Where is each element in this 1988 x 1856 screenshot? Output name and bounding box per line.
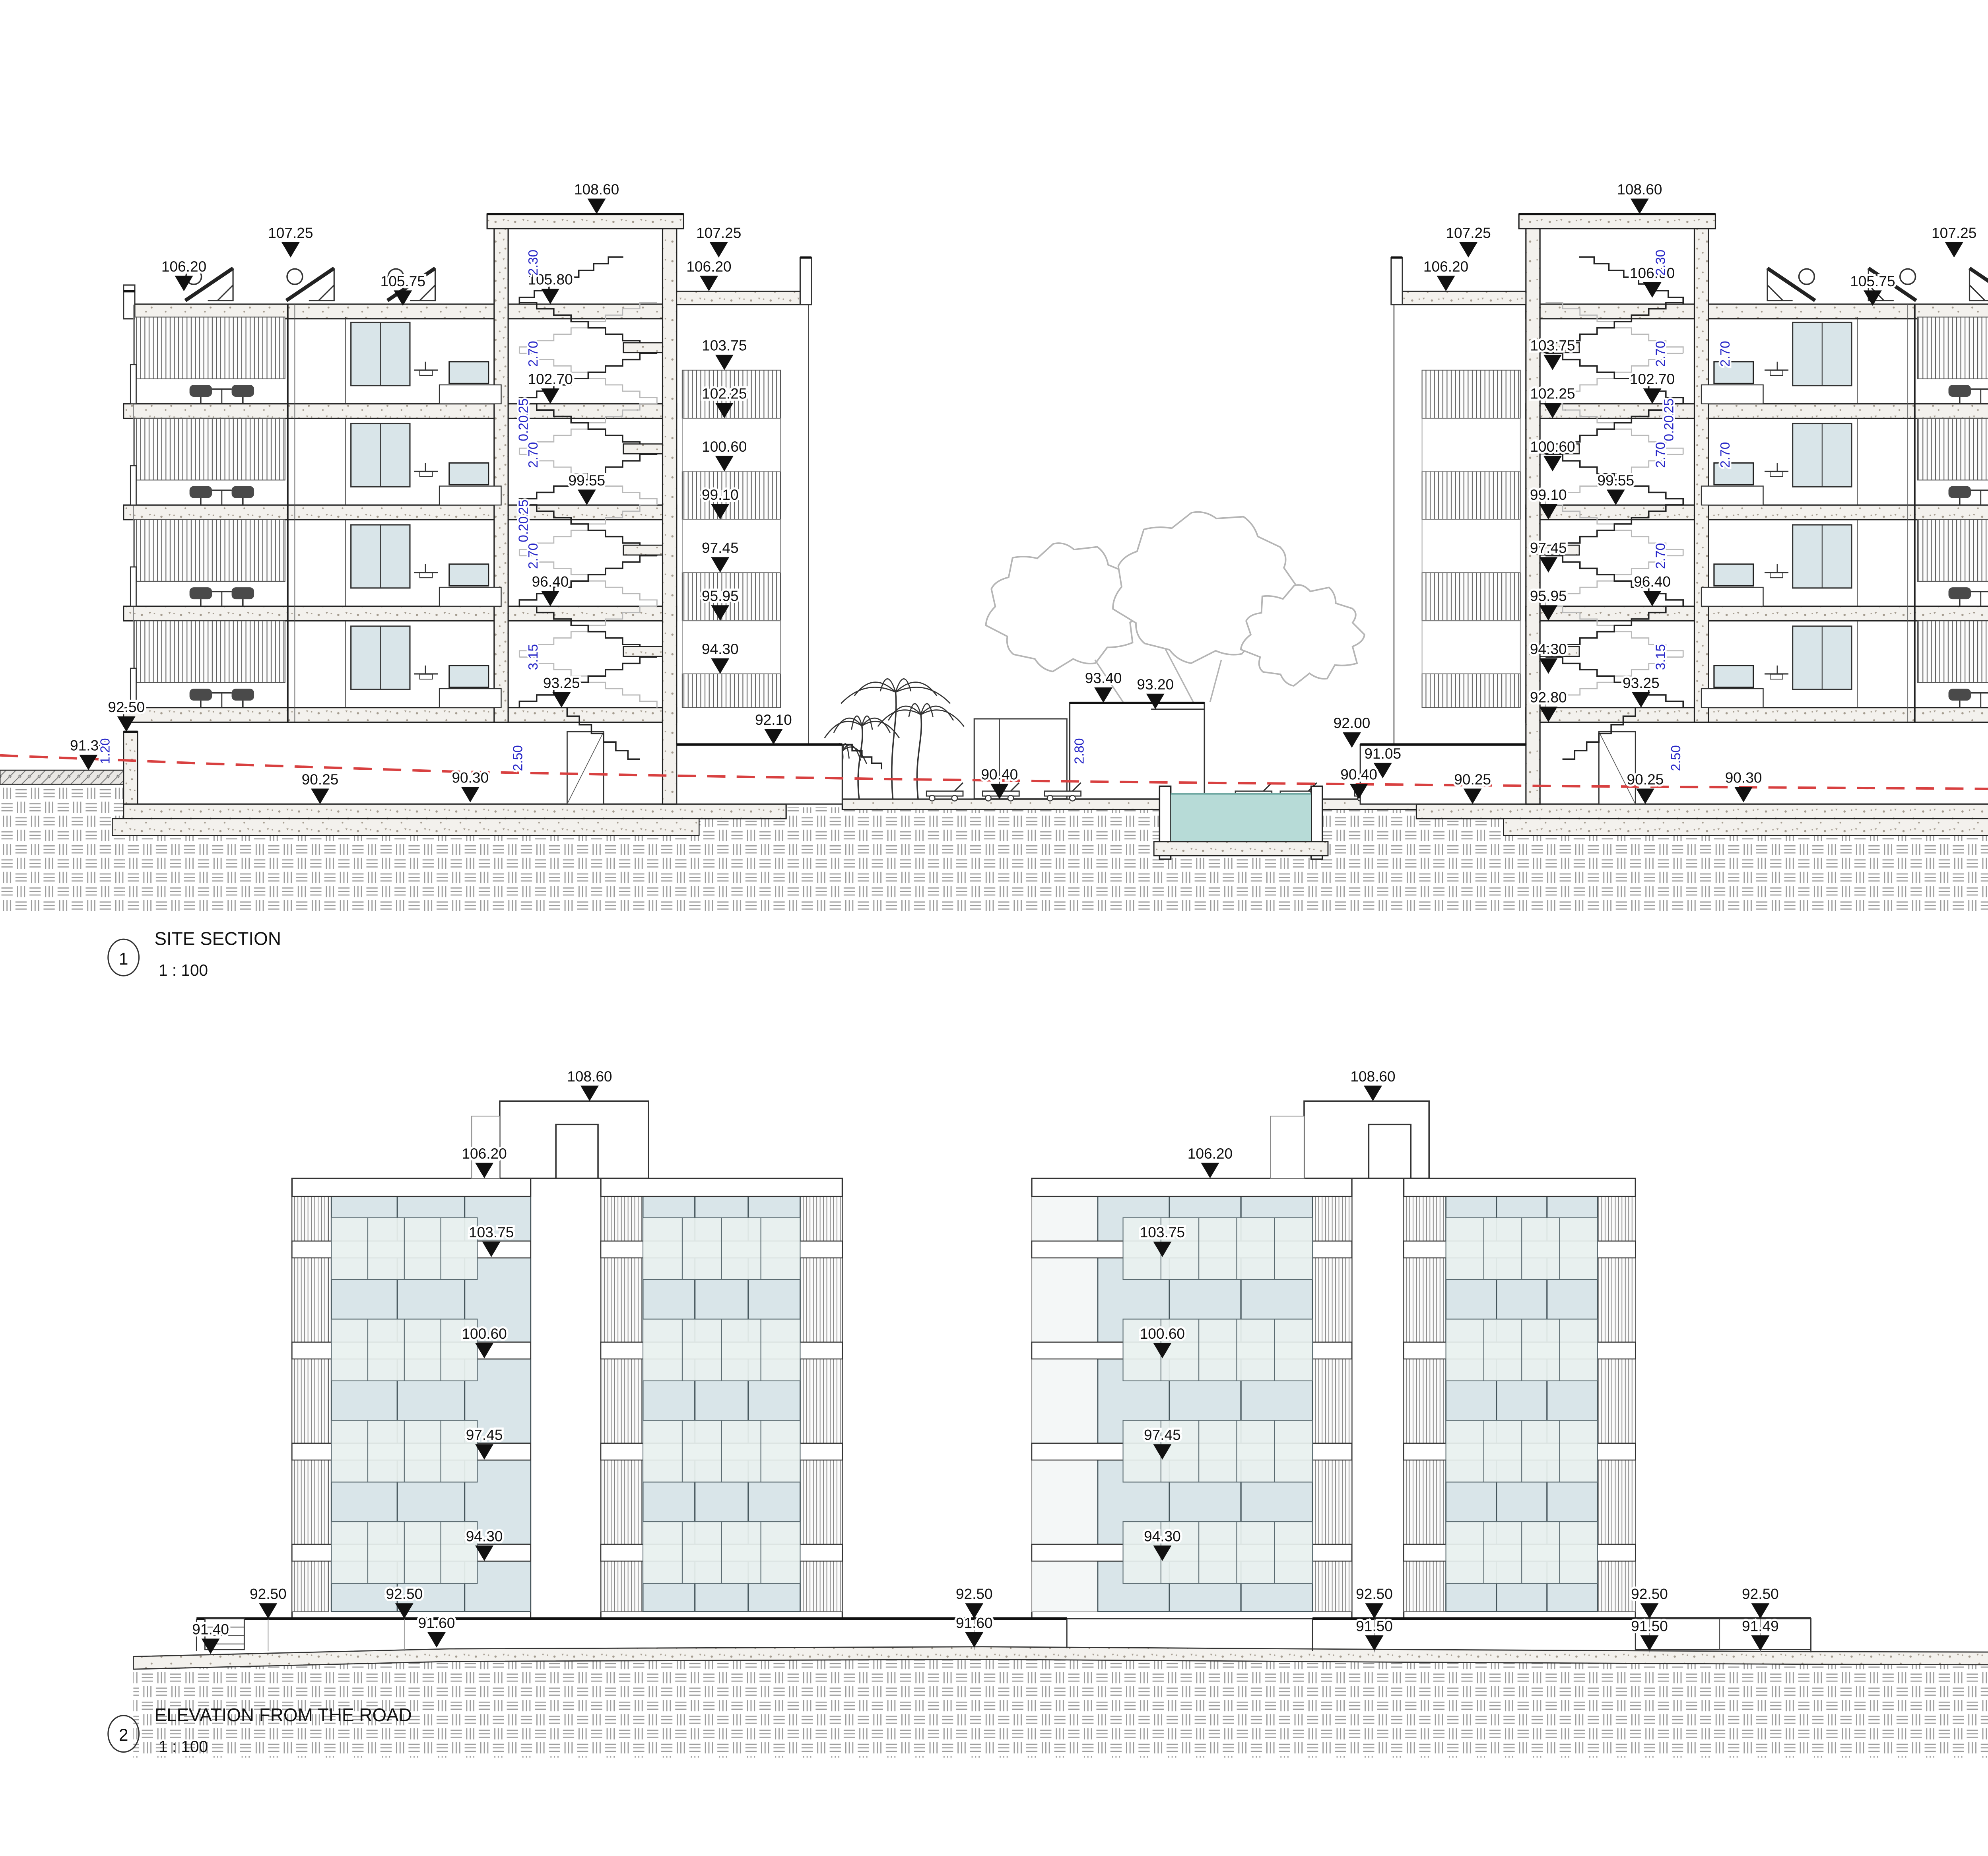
- level-value: 100.60: [1530, 438, 1575, 455]
- elevation-right-building-bay-b: [1404, 1178, 1636, 1619]
- level-value: 107.25: [1932, 224, 1976, 241]
- level-value: 91.60: [956, 1614, 993, 1631]
- dimension-value: 2.70: [1653, 543, 1668, 569]
- pool-deck-left: [842, 799, 1159, 810]
- level-value: 97.45: [466, 1427, 503, 1443]
- stair-landing: [623, 545, 663, 555]
- stair-core-wall: [662, 214, 676, 804]
- chair: [190, 587, 212, 599]
- level-value: 92.10: [755, 711, 792, 728]
- sink: [420, 573, 433, 578]
- view-title: SITE SECTION: [154, 928, 281, 949]
- level-value: 102.25: [1530, 385, 1575, 402]
- chair: [232, 587, 254, 599]
- level-value: 92.50: [1356, 1586, 1393, 1602]
- tv-cabinet: [439, 385, 501, 404]
- swimming-pool: [1154, 786, 1328, 859]
- balustrade: [130, 567, 136, 606]
- level-value: 99.55: [568, 472, 605, 489]
- level-value: 106.20: [1188, 1145, 1233, 1162]
- level-value: 106.20: [1423, 258, 1468, 275]
- chair: [232, 689, 254, 701]
- level-value: 92.80: [1530, 689, 1567, 706]
- stair-landing: [623, 646, 663, 656]
- dimension-value: 2.30: [1653, 250, 1668, 276]
- level-value: 99.55: [1597, 472, 1634, 489]
- level-value: 93.20: [1137, 676, 1174, 693]
- tv-screen: [449, 564, 489, 586]
- level-value: 108.60: [567, 1068, 612, 1085]
- level-value: 92.50: [250, 1586, 287, 1602]
- level-value: 106.20: [161, 258, 206, 275]
- dimension-value: 2.30: [526, 250, 541, 276]
- tv-cabinet: [439, 587, 501, 606]
- level-value: 94.30: [466, 1528, 503, 1545]
- dimension-value: 0.20: [516, 516, 531, 542]
- level-value: 103.75: [702, 337, 747, 353]
- dimension-value: 2.70: [526, 341, 541, 367]
- level-value: 100.60: [462, 1325, 507, 1342]
- stair-tower-roof: [487, 214, 683, 229]
- level-value: 102.70: [1630, 371, 1675, 387]
- chair: [190, 486, 212, 498]
- level-value: 94.30: [1144, 1528, 1181, 1545]
- level-value: 108.60: [574, 181, 619, 198]
- level-value: 91.05: [1364, 745, 1401, 762]
- level-value: 90.30: [1725, 769, 1762, 786]
- level-value: 100.60: [1140, 1325, 1185, 1342]
- roof-parapet-band: [292, 1178, 530, 1197]
- balcony-louver-screen: [135, 317, 285, 379]
- level-value: 108.60: [1350, 1068, 1395, 1085]
- dimension-value: 2.50: [511, 745, 525, 771]
- level-value: 92.50: [1631, 1586, 1668, 1602]
- roof-door: [1369, 1124, 1411, 1178]
- level-value: 91.49: [1742, 1618, 1779, 1635]
- balcony-louver-screen: [135, 418, 285, 480]
- level-value: 97.45: [1144, 1427, 1181, 1443]
- tv-cabinet: [439, 689, 501, 708]
- retaining-wall: [677, 745, 843, 804]
- roof-door: [556, 1124, 598, 1178]
- level-value: 93.40: [1085, 670, 1122, 686]
- dimension-value: 0.20: [1662, 415, 1677, 441]
- stair-landing: [623, 343, 663, 353]
- dimension-value: 2.70: [1653, 341, 1668, 367]
- balustrade: [130, 365, 136, 404]
- level-value: 91.40: [192, 1621, 229, 1638]
- level-value: 90.40: [1340, 766, 1377, 782]
- level-value: 93.25: [1623, 674, 1660, 691]
- level-value: 103.75: [469, 1224, 514, 1241]
- level-value: 99.10: [702, 486, 739, 503]
- dimension-value: 2.70: [1718, 341, 1733, 367]
- level-value: 102.70: [528, 371, 573, 387]
- tv-screen: [449, 666, 489, 687]
- tv-screen: [449, 362, 489, 384]
- level-value: 97.45: [702, 540, 739, 556]
- level-value: 107.25: [1446, 224, 1491, 241]
- sink: [420, 472, 433, 476]
- dimension-value: 1.20: [98, 738, 113, 764]
- sink: [420, 371, 433, 375]
- view-scale: 1 : 100: [159, 1737, 208, 1755]
- elevation-left-building-bay-b: [601, 1178, 842, 1619]
- level-value: 105.75: [1850, 273, 1895, 289]
- road-surface: [0, 770, 124, 784]
- tv-screen: [449, 463, 489, 485]
- level-value: 92.50: [1742, 1586, 1779, 1602]
- level-value: 95.95: [1530, 588, 1567, 604]
- level-value: 105.75: [381, 273, 425, 289]
- dimension-value: 2.70: [526, 442, 541, 468]
- level-value: 99.10: [1530, 486, 1567, 503]
- dimension-value: 2.70: [1718, 442, 1733, 468]
- level-value: 91.60: [418, 1614, 455, 1631]
- roof-parapet-band: [601, 1178, 842, 1197]
- pool-cabana: [1070, 703, 1204, 799]
- chair: [232, 486, 254, 498]
- level-value: 90.40: [981, 766, 1018, 782]
- dimension-value: 2.80: [1072, 738, 1087, 764]
- dimension-value: 2.70: [526, 543, 541, 569]
- level-value: 93.25: [543, 674, 580, 691]
- roof-parapet-band: [1032, 1178, 1352, 1197]
- chair: [190, 689, 212, 701]
- level-value: 92.50: [108, 699, 145, 715]
- level-value: 92.50: [956, 1586, 993, 1602]
- balcony-louver-screen: [135, 520, 285, 581]
- level-value: 95.95: [702, 588, 739, 604]
- level-value: 106.20: [686, 258, 731, 275]
- chair: [232, 385, 254, 397]
- level-value: 107.25: [696, 224, 741, 241]
- solar-tank: [287, 269, 303, 284]
- level-value: 96.40: [1634, 573, 1671, 590]
- chair: [190, 385, 212, 397]
- sink: [420, 674, 433, 679]
- dimension-value: 3.15: [526, 644, 541, 670]
- dimension-value: 0.20: [516, 415, 531, 441]
- stair-landing: [623, 444, 663, 454]
- level-value: 92.00: [1334, 714, 1371, 731]
- level-value: 102.25: [702, 385, 747, 402]
- architectural-sheet: 108.60107.25106.20105.75105.80102.7099.5…: [0, 0, 1988, 1856]
- level-value: 106.20: [462, 1145, 507, 1162]
- tv-cabinet: [439, 486, 501, 505]
- level-value: 108.60: [1617, 181, 1662, 198]
- balcony-louver-screen: [135, 621, 285, 682]
- level-value: 91.50: [1356, 1618, 1393, 1635]
- level-value: 103.75: [1140, 1224, 1185, 1241]
- level-value: 94.30: [702, 641, 739, 657]
- level-value: 90.30: [452, 769, 489, 786]
- level-value: 103.75: [1530, 337, 1575, 353]
- balustrade: [130, 466, 136, 505]
- view-number: 1: [119, 949, 128, 968]
- view-scale: 1 : 100: [159, 961, 208, 979]
- stair-core-wall: [494, 214, 508, 722]
- level-value: 96.40: [532, 573, 569, 590]
- view-title: ELEVATION FROM THE ROAD: [154, 1705, 412, 1725]
- roof-parapet-band: [1404, 1178, 1636, 1197]
- pool-water: [1171, 794, 1311, 842]
- dimension-value: 2.50: [1669, 745, 1683, 771]
- dimension-value: 2.70: [1653, 442, 1668, 468]
- level-value: 97.45: [1530, 540, 1567, 556]
- view-number: 2: [119, 1726, 128, 1744]
- level-value: 107.25: [268, 224, 313, 241]
- level-value: 90.25: [302, 771, 339, 788]
- level-value: 90.25: [1454, 771, 1491, 788]
- level-value: 100.60: [702, 438, 747, 455]
- dimension-value: 3.15: [1653, 644, 1668, 670]
- level-value: 94.30: [1530, 641, 1567, 657]
- level-value: 90.25: [1627, 771, 1664, 788]
- elevation-right-building-bay-a: [1032, 1178, 1352, 1619]
- level-value: 92.50: [386, 1586, 423, 1602]
- level-value: 91.50: [1631, 1618, 1668, 1635]
